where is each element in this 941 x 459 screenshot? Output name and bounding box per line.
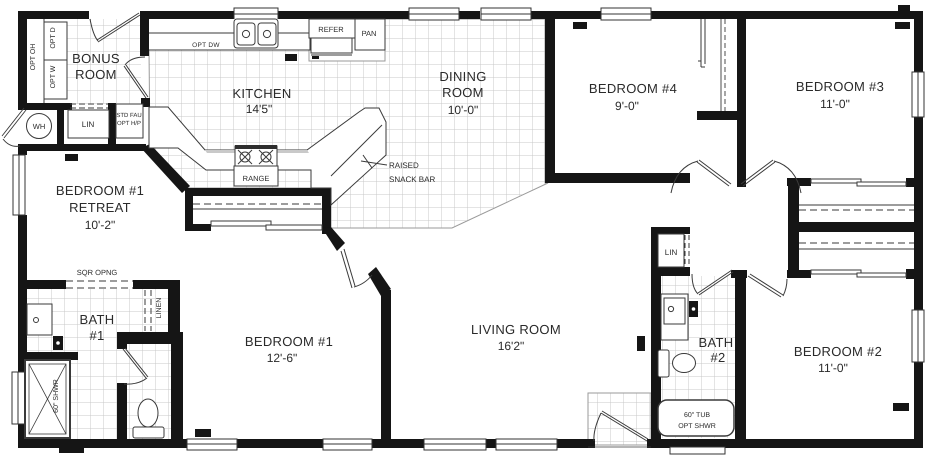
- svg-text:12'-6": 12'-6": [267, 351, 298, 365]
- svg-text:ROOM: ROOM: [75, 67, 117, 82]
- svg-text:9'-0": 9'-0": [615, 99, 639, 113]
- svg-text:BONUS: BONUS: [72, 51, 120, 66]
- svg-text:RANGE: RANGE: [243, 174, 270, 183]
- svg-text:RAISED: RAISED: [389, 161, 419, 170]
- svg-text:10'-2": 10'-2": [85, 218, 116, 232]
- svg-text:BEDROOM #1: BEDROOM #1: [56, 183, 144, 198]
- svg-text:SQR OPNG: SQR OPNG: [77, 268, 118, 277]
- svg-text:#1: #1: [89, 328, 104, 343]
- svg-text:STD FAU: STD FAU: [116, 112, 141, 119]
- svg-text:LIN: LIN: [665, 248, 678, 257]
- svg-text:11'-0": 11'-0": [818, 361, 848, 375]
- svg-text:OPT W: OPT W: [50, 65, 57, 88]
- svg-text:PAN: PAN: [362, 29, 377, 38]
- svg-text:REFER: REFER: [318, 25, 344, 34]
- svg-text:11'-0": 11'-0": [820, 97, 850, 111]
- svg-text:OPT D: OPT D: [50, 27, 57, 48]
- svg-text:LINEN: LINEN: [156, 298, 163, 319]
- svg-text:SNACK BAR: SNACK BAR: [389, 175, 435, 184]
- svg-text:OPT H/P: OPT H/P: [117, 120, 141, 127]
- svg-text:14'5": 14'5": [246, 102, 273, 116]
- svg-text:LIVING ROOM: LIVING ROOM: [471, 322, 561, 337]
- svg-text:#2: #2: [710, 350, 725, 365]
- svg-text:RETREAT: RETREAT: [69, 200, 131, 215]
- svg-text:60" TUB: 60" TUB: [684, 412, 710, 419]
- svg-text:OPT OH: OPT OH: [30, 44, 37, 71]
- svg-text:ROOM: ROOM: [442, 85, 484, 100]
- svg-text:DINING: DINING: [439, 69, 486, 84]
- svg-text:10'-0": 10'-0": [448, 103, 479, 117]
- svg-text:BEDROOM #4: BEDROOM #4: [589, 81, 677, 96]
- svg-text:60" SHWR: 60" SHWR: [53, 379, 60, 413]
- svg-text:OPT DW: OPT DW: [192, 42, 220, 49]
- svg-text:WH: WH: [33, 122, 46, 131]
- svg-text:BATH: BATH: [80, 312, 115, 327]
- svg-text:BATH: BATH: [699, 335, 734, 350]
- svg-text:BEDROOM #3: BEDROOM #3: [796, 79, 884, 94]
- svg-text:OPT SHWR: OPT SHWR: [678, 423, 716, 430]
- svg-text:BEDROOM #1: BEDROOM #1: [245, 334, 333, 349]
- svg-text:LIN: LIN: [82, 120, 95, 129]
- svg-text:KITCHEN: KITCHEN: [232, 86, 291, 101]
- svg-text:16'2": 16'2": [498, 339, 525, 353]
- svg-text:BEDROOM #2: BEDROOM #2: [794, 344, 882, 359]
